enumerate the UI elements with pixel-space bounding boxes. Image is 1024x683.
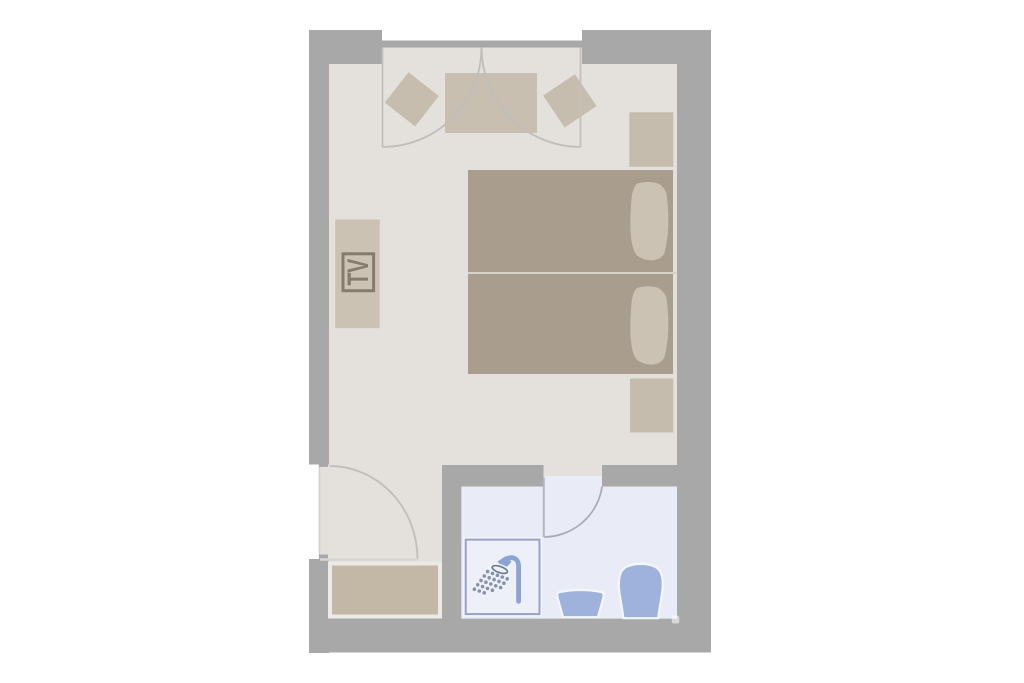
svg-text:TV: TV bbox=[343, 259, 375, 286]
